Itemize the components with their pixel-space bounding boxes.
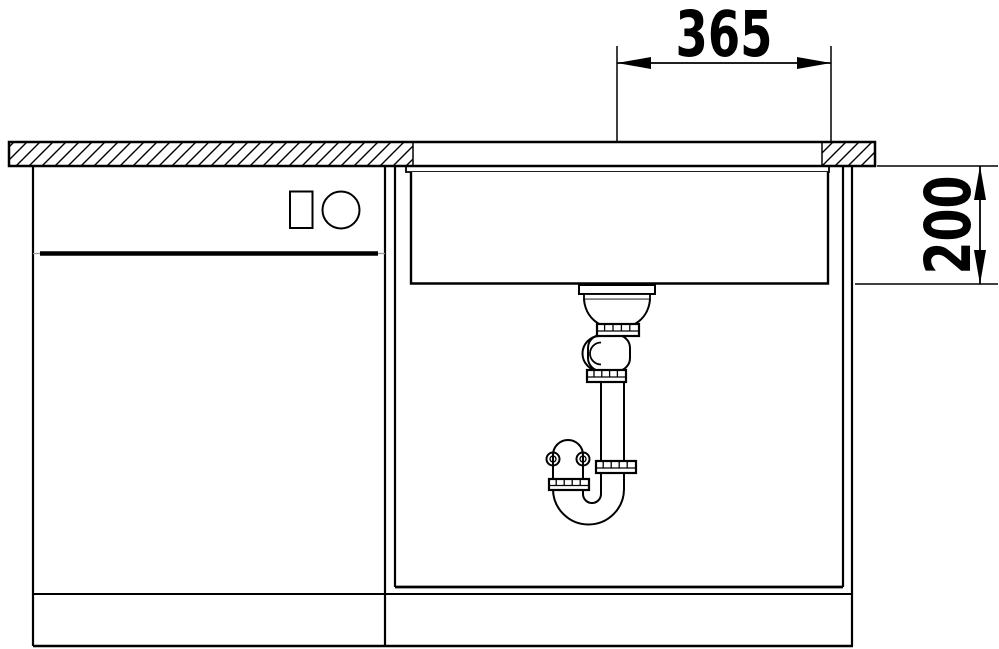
- elbow-joint-body: [588, 335, 630, 371]
- control-rectangle-symbol: [290, 192, 313, 229]
- countertop-hatch-left: [9, 142, 413, 166]
- sink-installation-drawing: 365 200: [0, 0, 999, 649]
- dim-arrow-right: [797, 57, 831, 69]
- coupling-nut-4: [549, 479, 589, 490]
- countertop-hatch-right: [822, 142, 875, 166]
- dimension-width-label: 365: [676, 0, 773, 71]
- dimension-depth: 200: [855, 166, 998, 284]
- dimension-depth-label: 200: [912, 176, 985, 275]
- coupling-nut-2: [587, 370, 626, 382]
- drain-trap-assembly: [547, 285, 656, 525]
- strainer-cup: [584, 300, 650, 326]
- sink: [406, 166, 829, 284]
- drain-flange-plate: [579, 285, 655, 294]
- control-knob-circle: [323, 192, 360, 229]
- drain-flange-step: [584, 294, 650, 300]
- dim-arrow-left: [617, 57, 651, 69]
- coupling-nut-3: [596, 461, 636, 473]
- dimension-width: 365: [617, 0, 831, 141]
- countertop: [9, 142, 875, 166]
- sink-bowl: [411, 172, 828, 284]
- standpipe: [601, 382, 624, 461]
- coupling-nut-1: [597, 324, 639, 336]
- trap-dome-cap: [553, 440, 583, 455]
